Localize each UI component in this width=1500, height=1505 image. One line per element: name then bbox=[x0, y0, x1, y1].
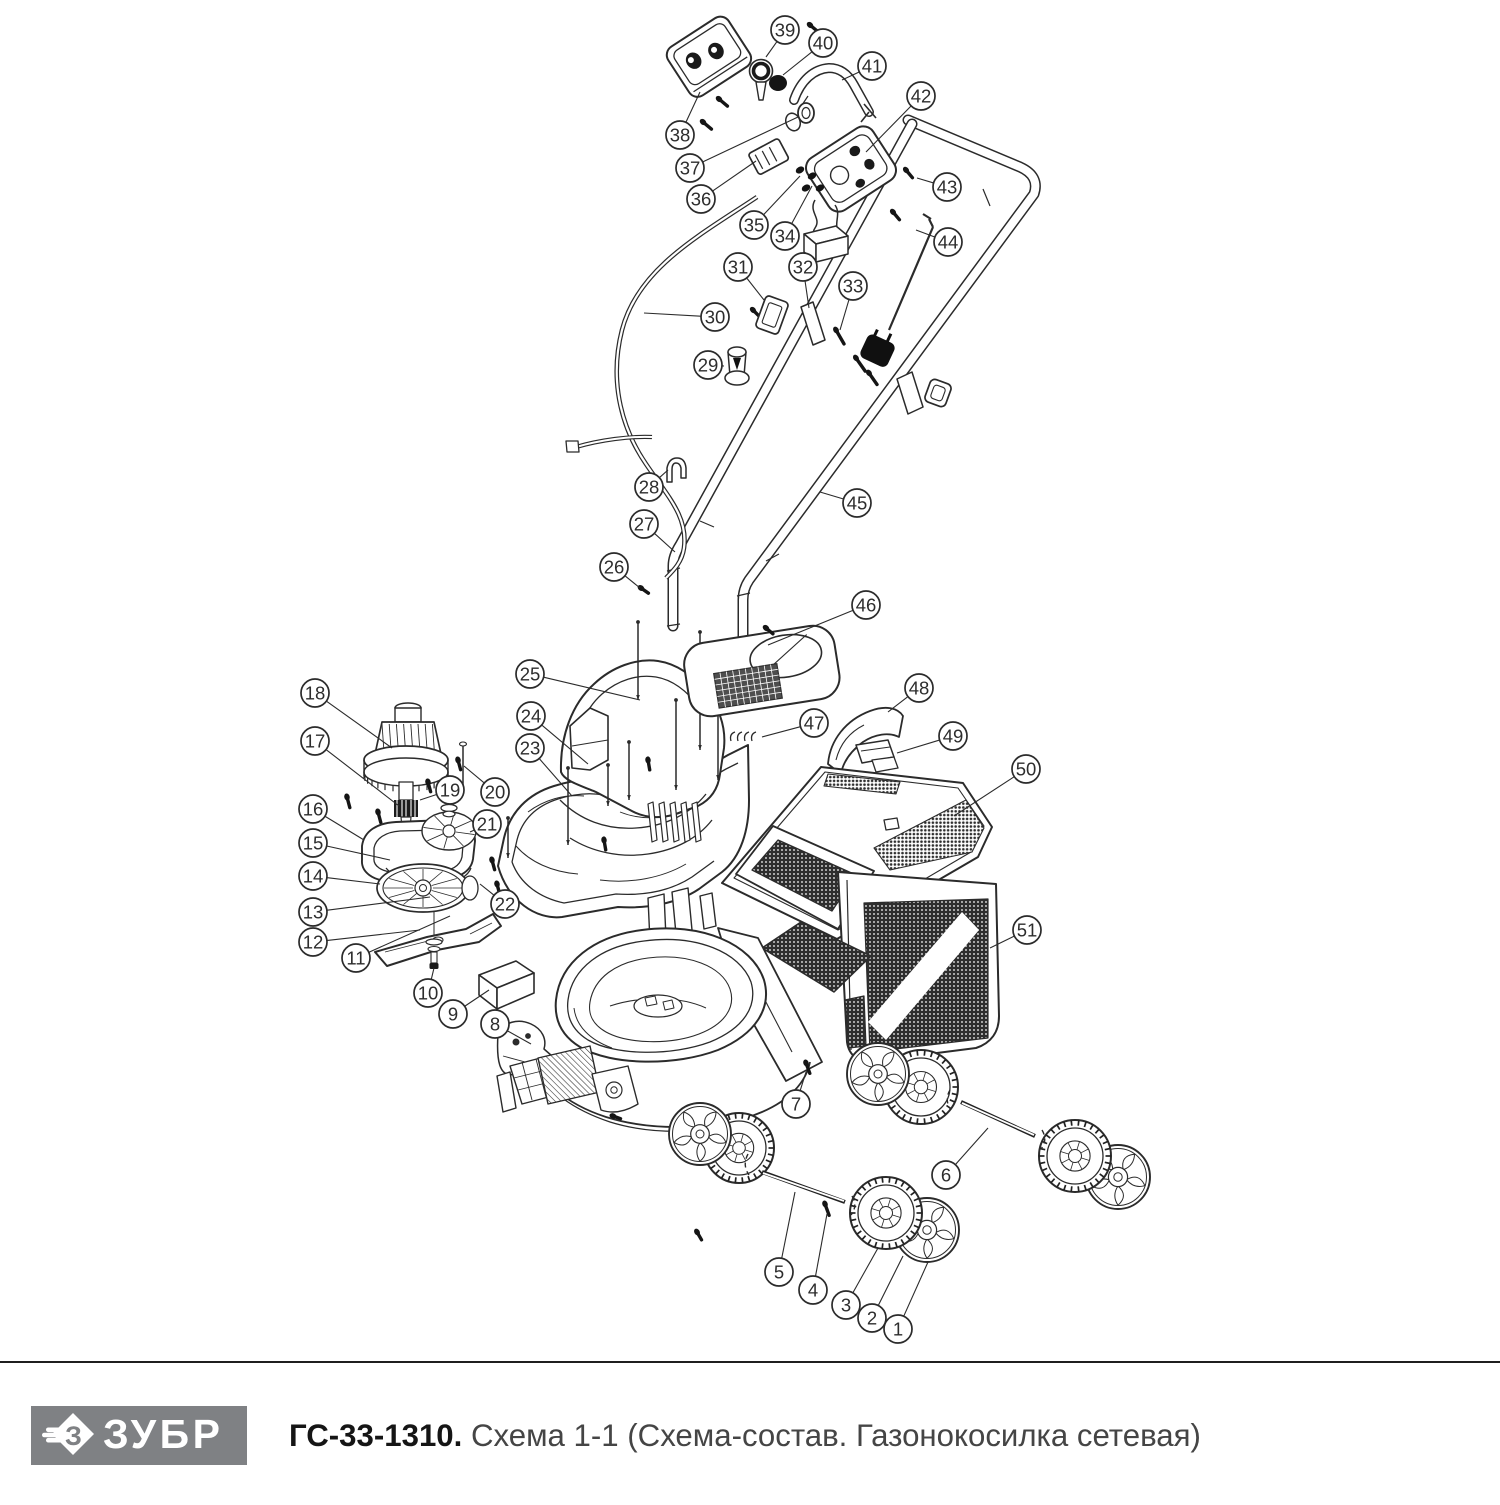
svg-text:4: 4 bbox=[808, 1280, 818, 1301]
svg-text:45: 45 bbox=[847, 493, 868, 514]
svg-text:ЗУБР: ЗУБР bbox=[103, 1411, 223, 1457]
svg-text:39: 39 bbox=[775, 20, 796, 41]
svg-text:26: 26 bbox=[604, 557, 625, 578]
svg-text:47: 47 bbox=[804, 713, 825, 734]
svg-text:35: 35 bbox=[744, 215, 765, 236]
svg-text:ГС-33-1310. Схема 1-1 (Схема-с: ГС-33-1310. Схема 1-1 (Схема-состав. Газ… bbox=[289, 1418, 1201, 1453]
svg-text:41: 41 bbox=[862, 56, 883, 77]
svg-text:29: 29 bbox=[698, 355, 719, 376]
svg-text:49: 49 bbox=[943, 726, 964, 747]
svg-text:2: 2 bbox=[867, 1308, 877, 1329]
svg-text:9: 9 bbox=[448, 1004, 458, 1025]
svg-text:24: 24 bbox=[521, 706, 542, 727]
svg-text:51: 51 bbox=[1017, 920, 1038, 941]
svg-text:17: 17 bbox=[305, 731, 326, 752]
svg-text:43: 43 bbox=[937, 177, 958, 198]
svg-text:22: 22 bbox=[495, 894, 516, 915]
svg-text:1: 1 bbox=[893, 1319, 903, 1340]
svg-text:3: 3 bbox=[841, 1295, 851, 1316]
svg-text:12: 12 bbox=[303, 932, 324, 953]
svg-text:7: 7 bbox=[791, 1094, 801, 1115]
svg-text:34: 34 bbox=[775, 226, 796, 247]
svg-text:46: 46 bbox=[856, 595, 877, 616]
svg-text:31: 31 bbox=[728, 257, 749, 278]
svg-text:8: 8 bbox=[490, 1014, 500, 1035]
svg-text:38: 38 bbox=[670, 125, 691, 146]
svg-text:27: 27 bbox=[634, 514, 655, 535]
svg-text:6: 6 bbox=[941, 1165, 951, 1186]
svg-text:40: 40 bbox=[813, 33, 834, 54]
svg-text:15: 15 bbox=[303, 833, 324, 854]
svg-text:16: 16 bbox=[303, 799, 324, 820]
svg-text:11: 11 bbox=[346, 948, 365, 969]
svg-text:18: 18 bbox=[305, 683, 326, 704]
svg-text:28: 28 bbox=[639, 477, 660, 498]
svg-text:10: 10 bbox=[418, 983, 439, 1004]
svg-text:50: 50 bbox=[1016, 759, 1037, 780]
svg-text:21: 21 bbox=[477, 814, 498, 835]
svg-text:25: 25 bbox=[520, 664, 541, 685]
svg-text:23: 23 bbox=[520, 738, 541, 759]
svg-text:44: 44 bbox=[938, 232, 959, 253]
svg-text:42: 42 bbox=[911, 86, 932, 107]
svg-text:З: З bbox=[65, 1421, 82, 1451]
svg-text:19: 19 bbox=[440, 780, 461, 801]
svg-text:36: 36 bbox=[691, 189, 712, 210]
svg-text:14: 14 bbox=[303, 866, 324, 887]
svg-text:5: 5 bbox=[774, 1262, 784, 1283]
svg-text:20: 20 bbox=[485, 782, 506, 803]
svg-text:30: 30 bbox=[705, 307, 726, 328]
svg-text:32: 32 bbox=[793, 257, 814, 278]
svg-text:37: 37 bbox=[680, 158, 701, 179]
svg-text:48: 48 bbox=[909, 678, 930, 699]
svg-text:33: 33 bbox=[843, 276, 864, 297]
svg-text:13: 13 bbox=[303, 902, 324, 923]
